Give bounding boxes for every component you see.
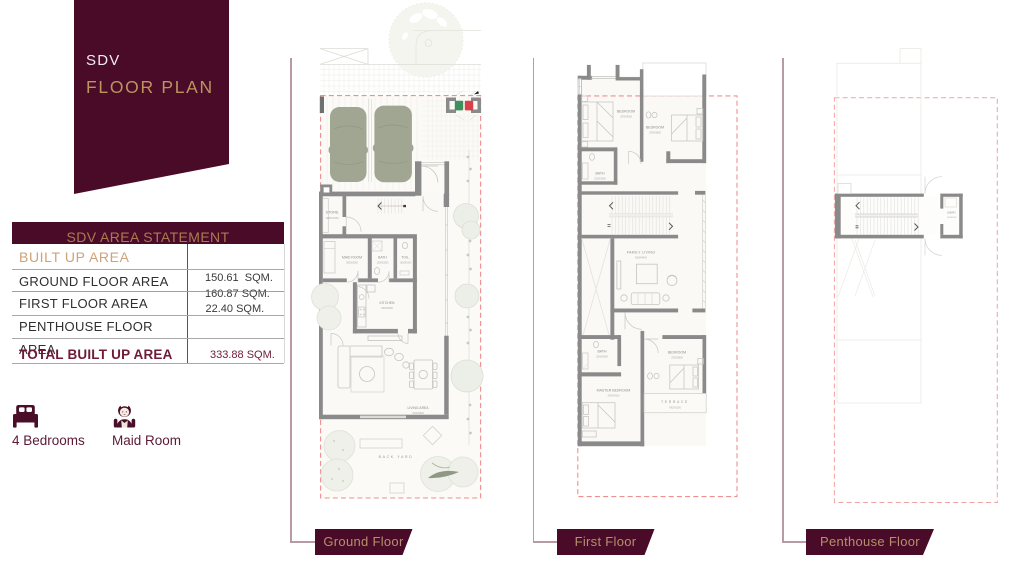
svg-text:7600X1300: 7600X1300 (669, 408, 681, 410)
svg-text:BEDROOM: BEDROOM (668, 351, 686, 355)
svg-text:TOIL.: TOIL. (401, 256, 409, 260)
svg-text:3700X3800: 3700X3800 (671, 358, 683, 360)
svg-text:FAMILY LIVING: FAMILY LIVING (627, 251, 655, 255)
svg-text:BATH: BATH (595, 172, 605, 176)
svg-text:BEDROOM: BEDROOM (617, 110, 635, 114)
svg-text:1500X1900: 1500X1900 (400, 263, 412, 265)
svg-text:3700X4100: 3700X4100 (608, 396, 620, 398)
svg-text:3400X3300: 3400X3300 (381, 308, 393, 310)
svg-text:STORE: STORE (325, 211, 338, 215)
svg-text:1200X2400: 1200X2400 (325, 216, 339, 220)
svg-text:BACK YARD: BACK YARD (379, 455, 414, 459)
svg-text:2200X2600: 2200X2600 (596, 357, 608, 359)
svg-text:5300X4400: 5300X4400 (635, 258, 647, 260)
svg-text:MAID ROOM: MAID ROOM (342, 256, 362, 260)
svg-text:2200X2600: 2200X2600 (594, 179, 606, 181)
svg-text:1100X2400: 1100X2400 (947, 217, 957, 219)
svg-text:MASTER BEDROOM: MASTER BEDROOM (597, 389, 631, 393)
svg-text:2000X2500: 2000X2500 (346, 263, 358, 265)
svg-text:BEDROOM: BEDROOM (646, 126, 664, 130)
svg-text:LIVING AREA: LIVING AREA (407, 406, 429, 410)
svg-text:1500X2500: 1500X2500 (377, 263, 389, 265)
svg-text:3700X4300: 3700X4300 (620, 117, 632, 119)
svg-text:BATH: BATH (378, 256, 387, 260)
svg-text:KITCHEN: KITCHEN (380, 301, 395, 305)
svg-text:7000X4600: 7000X4600 (412, 413, 424, 415)
svg-text:3700X3800: 3700X3800 (649, 133, 661, 135)
svg-text:LNDRY.: LNDRY. (947, 211, 957, 215)
svg-text:BATH: BATH (597, 350, 607, 354)
svg-text:TERRACE: TERRACE (661, 400, 689, 404)
